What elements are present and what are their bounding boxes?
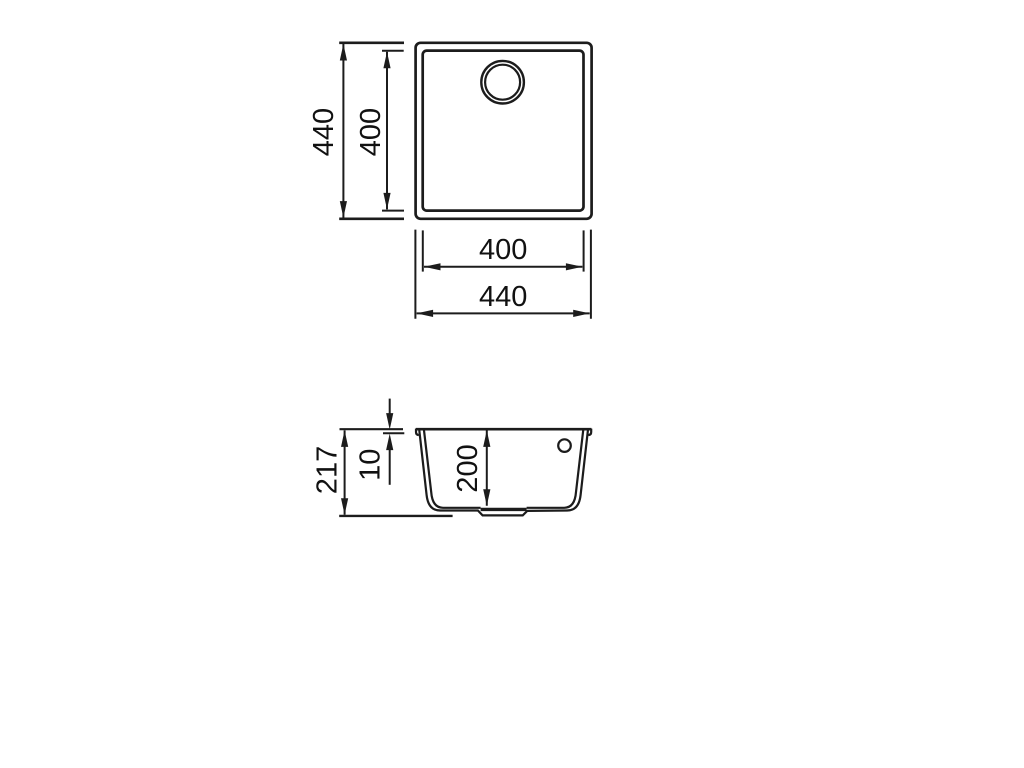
svg-text:440: 440 — [479, 281, 527, 313]
svg-text:10: 10 — [355, 449, 387, 481]
svg-text:440: 440 — [308, 108, 340, 156]
svg-text:400: 400 — [479, 234, 527, 266]
svg-text:400: 400 — [355, 108, 387, 156]
svg-text:200: 200 — [452, 444, 484, 492]
svg-text:217: 217 — [311, 446, 343, 494]
